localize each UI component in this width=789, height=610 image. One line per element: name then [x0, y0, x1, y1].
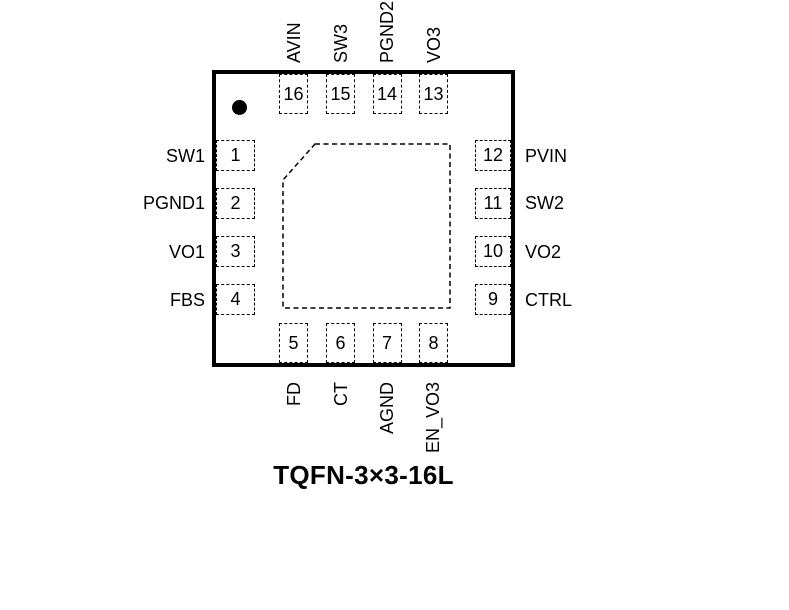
pin-label-sw1: SW1 — [60, 145, 205, 167]
pin-label-pgnd1: PGND1 — [60, 192, 205, 214]
pin-box-11: 11 — [475, 188, 511, 219]
pin-number: 13 — [423, 84, 443, 105]
pin-number: 6 — [335, 333, 345, 354]
pin-number: 8 — [428, 333, 438, 354]
pin-number: 2 — [230, 193, 240, 214]
pin-number: 4 — [230, 289, 240, 310]
pin-label-ctrl: CTRL — [525, 289, 675, 311]
pin-label-fbs: FBS — [60, 289, 205, 311]
pin-number: 3 — [230, 241, 240, 262]
pin-box-8: 8 — [419, 323, 448, 363]
pin-label-pvin: PVIN — [525, 145, 675, 167]
pin-label-vo1: VO1 — [60, 241, 205, 263]
pin-box-5: 5 — [279, 323, 308, 363]
pin-number: 12 — [483, 145, 503, 166]
pin-number: 16 — [283, 84, 303, 105]
pin-number: 1 — [230, 145, 240, 166]
pin-number: 10 — [483, 241, 503, 262]
pin-label-vo2: VO2 — [525, 241, 675, 263]
pin1-indicator-dot — [232, 100, 247, 115]
pin-box-10: 10 — [475, 236, 511, 267]
pin-number: 14 — [377, 84, 397, 105]
pin-box-16: 16 — [279, 74, 308, 114]
pinout-diagram: 16 15 14 13 5 6 7 8 1 2 3 4 12 11 10 9 S… — [0, 0, 789, 610]
pin-number: 11 — [484, 193, 503, 214]
pin-box-9: 9 — [475, 284, 511, 315]
pin-number: 5 — [288, 333, 298, 354]
pin-number: 15 — [330, 84, 350, 105]
pin-number: 7 — [382, 333, 392, 354]
pin-box-12: 12 — [475, 140, 511, 171]
pin-box-2: 2 — [216, 188, 255, 219]
pin-box-7: 7 — [373, 323, 402, 363]
pin-number: 9 — [488, 289, 498, 310]
pin-box-1: 1 — [216, 140, 255, 171]
pin-label-sw2: SW2 — [525, 192, 675, 214]
pin-box-15: 15 — [326, 74, 355, 114]
pin-box-6: 6 — [326, 323, 355, 363]
pin-box-4: 4 — [216, 284, 255, 315]
pin-box-14: 14 — [373, 74, 402, 114]
exposed-pad — [281, 142, 453, 311]
package-caption: TQFN-3×3-16L — [212, 460, 515, 491]
pin-box-13: 13 — [419, 74, 448, 114]
pin-box-3: 3 — [216, 236, 255, 267]
